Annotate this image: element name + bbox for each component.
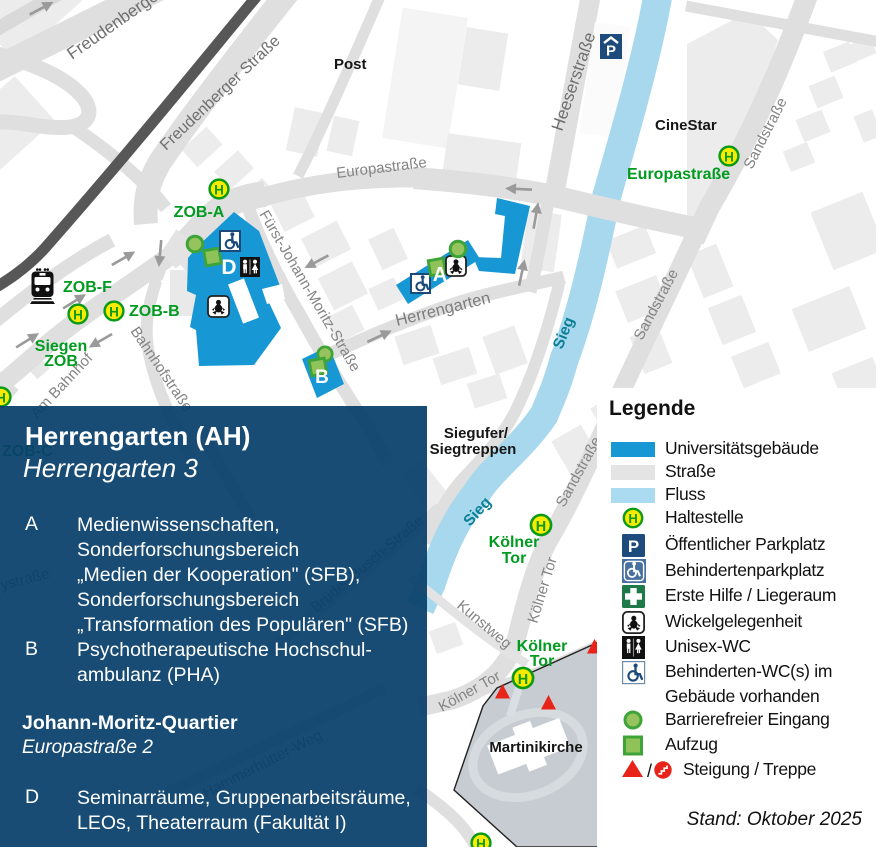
svg-text:ZOB-B: ZOB-B (129, 303, 180, 320)
svg-text:ZOB: ZOB (44, 353, 78, 370)
svg-text:P: P (628, 537, 639, 556)
svg-text:B: B (315, 367, 329, 388)
svg-text:/: / (647, 761, 652, 781)
svg-text:ZOB-F: ZOB-F (63, 279, 112, 296)
svg-text:Tor: Tor (530, 653, 555, 670)
svg-text:H: H (628, 511, 637, 526)
svg-text:Martinikirche: Martinikirche (489, 739, 582, 756)
svg-text:A: A (433, 264, 447, 286)
svg-text:CineStar: CineStar (655, 117, 717, 134)
svg-text:Tor: Tor (502, 550, 527, 567)
svg-text:Europastraße: Europastraße (627, 166, 730, 183)
svg-text:Siegufer/: Siegufer/ (444, 425, 509, 442)
svg-text:ZOB-A: ZOB-A (174, 204, 225, 221)
svg-text:D: D (221, 256, 236, 279)
svg-text:Post: Post (334, 56, 367, 73)
svg-text:P: P (606, 43, 616, 60)
svg-text:Siegtreppen: Siegtreppen (430, 441, 517, 458)
svg-text:Kölner: Kölner (489, 534, 540, 551)
